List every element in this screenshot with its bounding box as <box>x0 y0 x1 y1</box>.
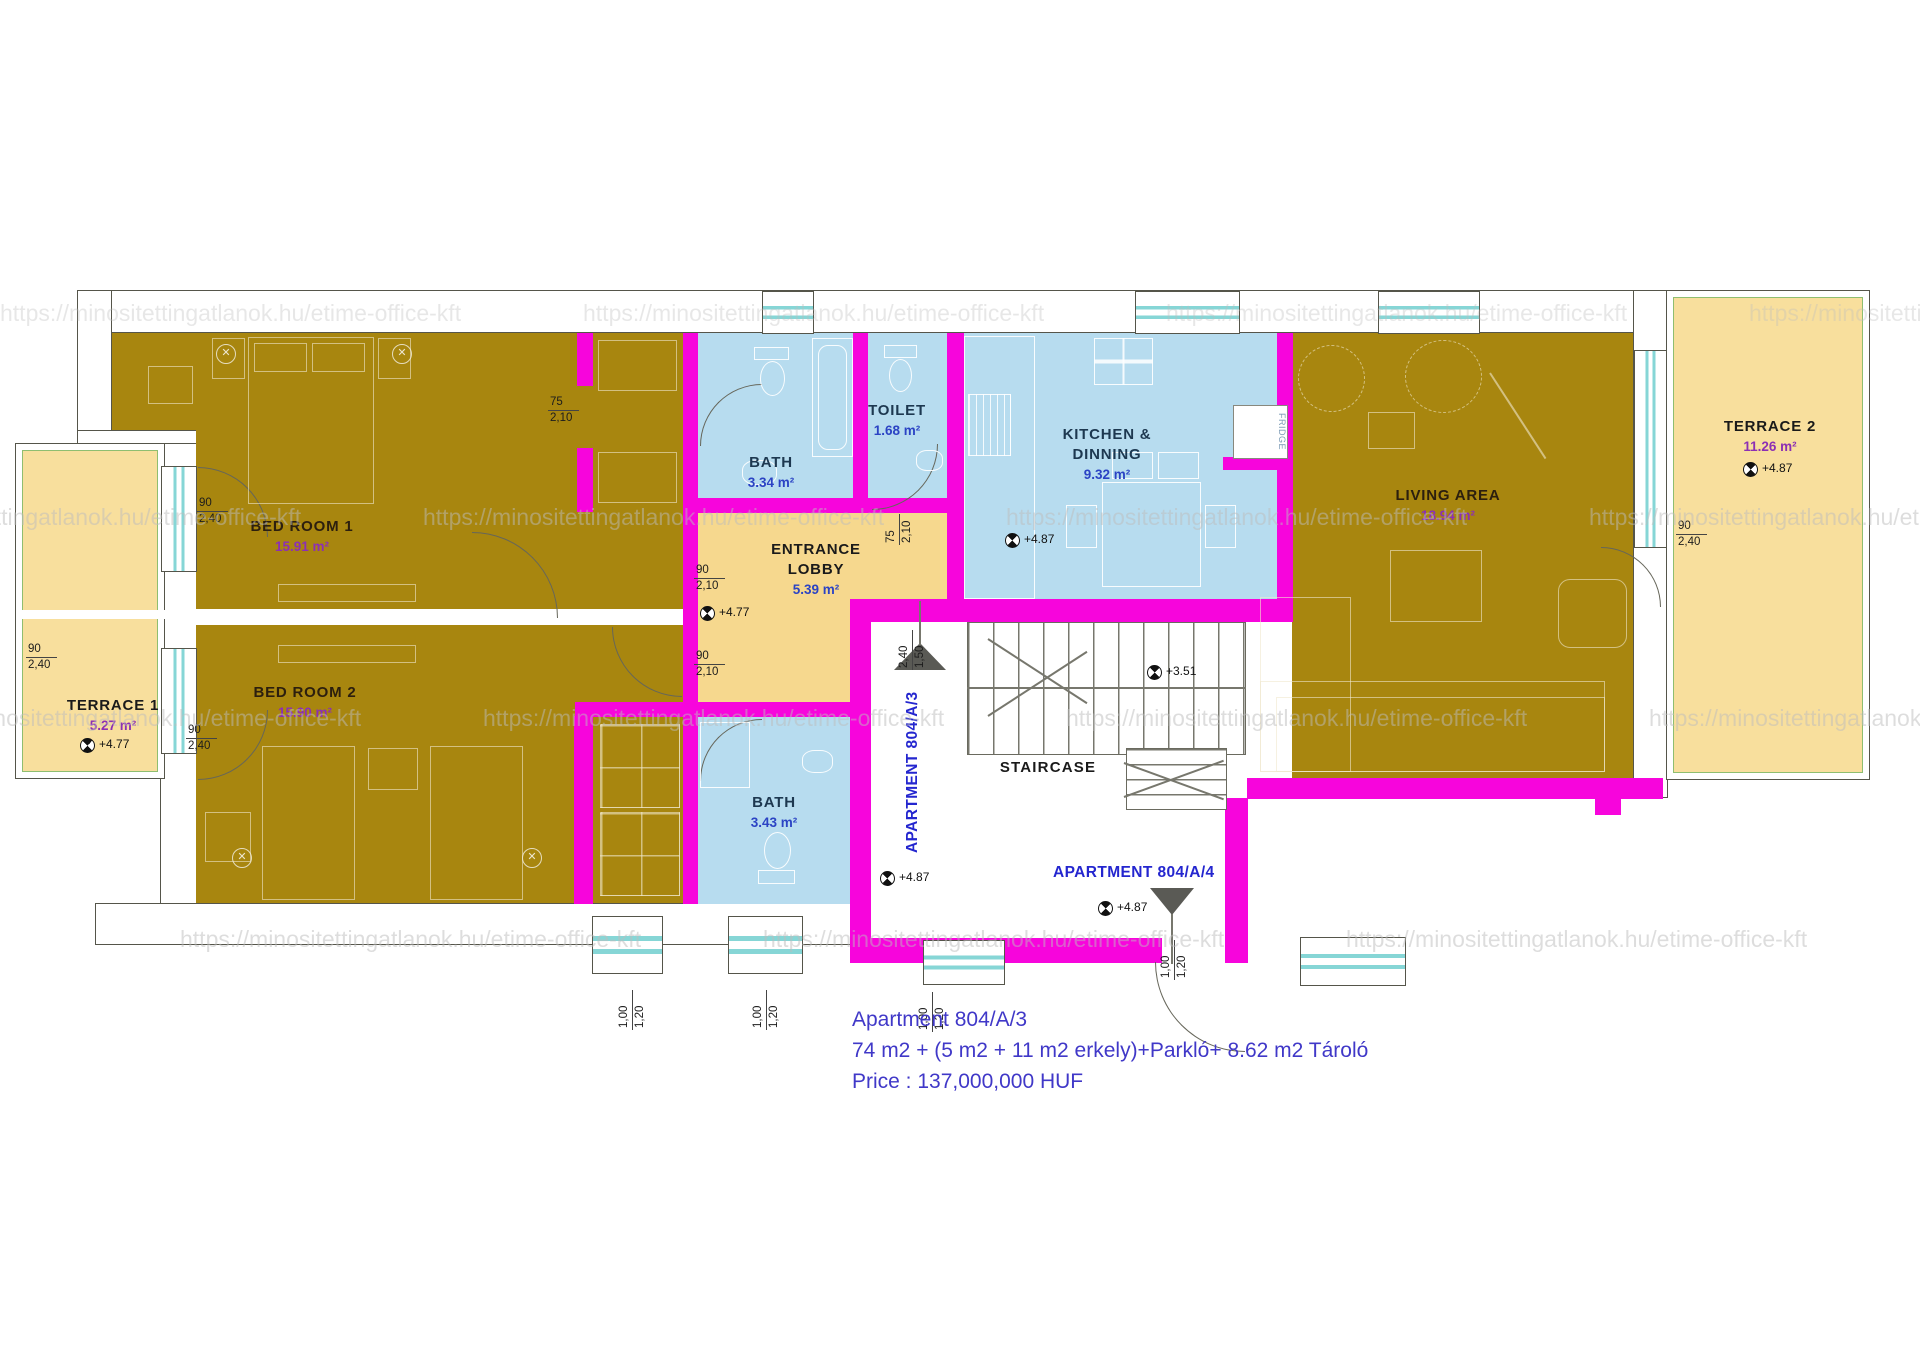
wall-magenta <box>1277 333 1293 621</box>
listing-size: 74 m2 + (5 m2 + 11 m2 erkely)+Parkló+ 8.… <box>852 1035 1368 1066</box>
desk <box>148 366 193 404</box>
level-crosshair-icon <box>77 735 98 756</box>
elevation-marker: +4.87 <box>1743 461 1792 477</box>
elevation-marker: +3.51 <box>1147 664 1196 680</box>
stair-flight-lower <box>1126 748 1227 810</box>
wardrobe <box>598 340 677 391</box>
wall-magenta <box>850 938 1162 963</box>
bathtub-inner <box>818 345 847 450</box>
wall-magenta <box>683 333 698 904</box>
window <box>1378 291 1480 334</box>
level-crosshair-icon <box>877 868 898 889</box>
wall-magenta <box>577 448 593 512</box>
level-crosshair-icon <box>1095 898 1116 919</box>
window <box>923 940 1005 985</box>
ceiling-fan-icon: ✕ <box>392 344 412 364</box>
side-table <box>1368 412 1415 449</box>
elevation-marker: +4.87 <box>1005 532 1054 548</box>
wall-magenta <box>575 702 851 717</box>
chair <box>1158 452 1199 479</box>
terrace2-label: TERRACE 2 11.26 m² <box>1724 418 1816 454</box>
single-bed <box>430 746 523 900</box>
bedroom-divider-wall <box>196 609 683 625</box>
wall-magenta <box>850 599 871 963</box>
dimension-label: 90 2,40 <box>1676 520 1707 549</box>
wall-magenta <box>574 716 593 904</box>
entry-triangle-a4-icon <box>1150 888 1194 915</box>
dimension-label: 75 2,10 <box>885 514 914 545</box>
coffee-table <box>1390 550 1482 622</box>
dimension-label: 1,00 1,20 <box>1160 940 1189 980</box>
dimension-label: 2,40 1,50 <box>898 630 927 670</box>
dresser <box>278 645 416 663</box>
chair <box>1066 505 1097 548</box>
section-line-terrace <box>20 610 198 619</box>
dresser <box>278 584 416 602</box>
listing-summary: Apartment 804/A/3 74 m2 + (5 m2 + 11 m2 … <box>852 1004 1368 1097</box>
elevation-marker: +4.87 <box>1098 900 1147 916</box>
nightstand <box>368 748 418 790</box>
dining-table <box>1102 482 1201 587</box>
watermark: https://minositettingatlanok.hu/etime-of… <box>1346 926 1807 953</box>
floor-plan: FRIDGE ✕ ✕ ✕ ✕ <box>0 0 1920 1357</box>
level-crosshair-icon <box>1144 662 1165 683</box>
shower <box>700 722 750 788</box>
dimension-label: 75 2,10 <box>548 396 579 425</box>
wardrobe <box>598 452 677 503</box>
kitchen-label: KITCHEN & DINNING 9.32 m² <box>1063 426 1152 482</box>
toilet-label: TOILET 1.68 m² <box>868 402 926 438</box>
apartment-a3-label: APARTMENT 804/A/3 <box>904 652 922 892</box>
wall-magenta <box>577 333 593 386</box>
wall-magenta <box>683 498 964 513</box>
pillow <box>312 343 365 372</box>
wall-magenta <box>1225 798 1248 963</box>
sink <box>802 750 833 773</box>
wardrobe-grid <box>600 724 680 808</box>
window <box>592 916 663 974</box>
wall-magenta <box>1595 798 1621 815</box>
toilet-tank <box>884 345 917 358</box>
window <box>728 916 803 974</box>
stove <box>1094 338 1153 385</box>
elevation-marker: +4.87 <box>880 870 929 886</box>
ceiling-fan-icon: ✕ <box>216 344 236 364</box>
terrace1-label: TERRACE 1 5.27 m² <box>67 697 159 733</box>
staircase-label: STAIRCASE <box>1000 759 1096 776</box>
listing-price: Price : 137,000,000 HUF <box>852 1066 1368 1097</box>
chair <box>1205 505 1236 548</box>
sofa-seat-line <box>1276 697 1605 772</box>
bath2-label: BATH 3.43 m² <box>751 794 798 830</box>
wall-magenta <box>853 333 868 513</box>
kitchen-sink <box>968 394 1011 456</box>
bedroom1-label: BED ROOM 1 15.91 m² <box>250 518 353 554</box>
pillow <box>254 343 307 372</box>
window <box>1634 350 1667 548</box>
apartment-a4-label: APARTMENT 804/A/4 <box>1053 864 1215 882</box>
armchair <box>1558 579 1627 648</box>
dimension-label: 90 2,40 <box>26 643 57 672</box>
single-bed <box>262 746 355 900</box>
dimension-label: 90 2,10 <box>694 650 725 679</box>
bedroom2-label: BED ROOM 2 15.90 m² <box>253 684 356 720</box>
dimension-label: 1,00 1,20 <box>618 990 647 1030</box>
toilet-bowl <box>889 359 912 392</box>
plant-chair <box>1298 345 1365 412</box>
wall-magenta <box>947 333 964 621</box>
window <box>762 291 814 334</box>
ceiling-fan-icon: ✕ <box>522 848 542 868</box>
toilet-tank <box>758 870 795 884</box>
dimension-label: 90 2,40 <box>186 724 217 753</box>
listing-title: Apartment 804/A/3 <box>852 1004 1368 1035</box>
wall-magenta <box>850 599 1293 622</box>
toilet-tank <box>754 347 789 360</box>
sink <box>916 450 943 471</box>
toilet-bowl <box>764 832 791 869</box>
wall-magenta <box>1247 778 1663 799</box>
level-crosshair-icon <box>1740 459 1761 480</box>
dimension-label: 90 2,10 <box>694 564 725 593</box>
level-crosshair-icon <box>697 603 718 624</box>
plant-chair <box>1405 340 1482 413</box>
lobby-label: ENTRANCE LOBBY 5.39 m² <box>771 541 861 597</box>
elevation-marker: +4.77 <box>80 737 129 753</box>
ceiling-fan-icon: ✕ <box>232 848 252 868</box>
wardrobe-grid <box>600 812 680 896</box>
level-crosshair-icon <box>1002 530 1023 551</box>
kitchen-counter <box>964 336 1035 599</box>
elevation-marker: +4.77 <box>700 605 749 621</box>
dimension-label: 1,00 1,20 <box>752 990 781 1030</box>
toilet-bowl <box>760 361 785 396</box>
window <box>161 466 197 572</box>
living-label: LIVING AREA 18.94 m² <box>1396 487 1501 523</box>
window <box>1300 937 1406 986</box>
dimension-label: 90 2,40 <box>197 497 228 526</box>
window <box>1135 291 1240 334</box>
stair-divider <box>967 687 1246 689</box>
fridge-niche: FRIDGE <box>1233 405 1288 459</box>
bath1-label: BATH 3.34 m² <box>748 454 795 490</box>
